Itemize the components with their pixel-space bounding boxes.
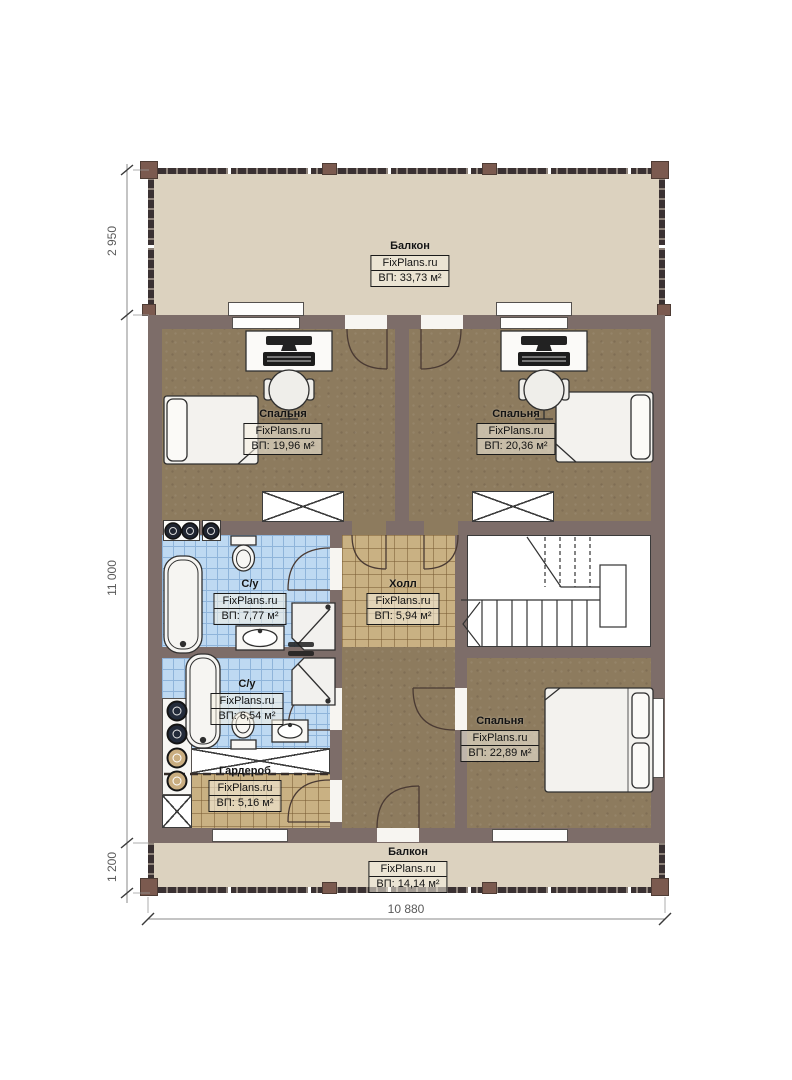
room-info-box: FixPlans.ru ВП: 19,96 м² bbox=[243, 423, 322, 455]
room-label-wardrobe: Гардероб FixPlans.ru ВП: 5,16 м² bbox=[208, 765, 281, 812]
room-label-hall: Холл FixPlans.ru ВП: 5,94 м² bbox=[366, 578, 439, 625]
room-info-box: FixPlans.ru ВП: 6,54 м² bbox=[210, 693, 283, 725]
window bbox=[492, 829, 568, 842]
room-area: ВП: 20,36 м² bbox=[477, 439, 554, 454]
corridor-floor bbox=[342, 647, 455, 828]
room-area: ВП: 5,94 м² bbox=[367, 609, 438, 624]
laundry-column bbox=[162, 698, 192, 795]
room-name: Спальня bbox=[476, 408, 555, 421]
room-area: ВП: 5,16 м² bbox=[209, 796, 280, 811]
counter-box bbox=[202, 520, 221, 541]
window bbox=[652, 698, 664, 778]
watermark-text: FixPlans.ru bbox=[461, 731, 538, 747]
dimension-left-middle: 11 000 bbox=[105, 552, 119, 604]
balcony-post bbox=[482, 882, 497, 894]
balcony-door-opening bbox=[377, 828, 419, 842]
watermark-text: FixPlans.ru bbox=[209, 781, 280, 797]
room-label-balcony-bottom: Балкон FixPlans.ru ВП: 14,14 м² bbox=[368, 846, 447, 893]
door-opening bbox=[330, 780, 342, 822]
staircase-floor bbox=[467, 535, 651, 647]
balcony-post bbox=[651, 161, 669, 179]
room-info-box: FixPlans.ru ВП: 22,89 м² bbox=[460, 730, 539, 762]
window bbox=[496, 302, 572, 316]
shower-size-stamp bbox=[288, 642, 314, 647]
watermark-text: FixPlans.ru bbox=[211, 694, 282, 710]
room-info-box: FixPlans.ru ВП: 5,94 м² bbox=[366, 593, 439, 625]
balcony-door-opening bbox=[345, 315, 387, 329]
balcony-right-railing bbox=[659, 168, 665, 318]
window bbox=[500, 317, 568, 329]
room-info-box: FixPlans.ru ВП: 7,77 м² bbox=[213, 593, 286, 625]
room-label-bathroom-lower: С/у FixPlans.ru ВП: 6,54 м² bbox=[210, 678, 283, 725]
balcony-door-opening bbox=[421, 315, 463, 329]
room-info-box: FixPlans.ru ВП: 14,14 м² bbox=[368, 861, 447, 893]
floor-plan-canvas: Балкон FixPlans.ru ВП: 33,73 м² Спальня … bbox=[0, 0, 792, 1080]
room-label-bedroom-top-right: Спальня FixPlans.ru ВП: 20,36 м² bbox=[476, 408, 555, 455]
room-name: С/у bbox=[210, 678, 283, 691]
room-label-bedroom-top-left: Спальня FixPlans.ru ВП: 19,96 м² bbox=[243, 408, 322, 455]
dimension-left-bottom: 1 200 bbox=[105, 845, 119, 889]
balcony-top-railing bbox=[148, 168, 665, 174]
room-area: ВП: 7,77 м² bbox=[214, 609, 285, 624]
room-label-bathroom-upper: С/у FixPlans.ru ВП: 7,77 м² bbox=[213, 578, 286, 625]
room-info-box: FixPlans.ru ВП: 33,73 м² bbox=[370, 255, 449, 287]
room-name: Холл bbox=[366, 578, 439, 591]
room-name: Гардероб bbox=[208, 765, 281, 778]
room-area: ВП: 19,96 м² bbox=[244, 439, 321, 454]
watermark-text: FixPlans.ru bbox=[477, 424, 554, 440]
room-area: ВП: 33,73 м² bbox=[371, 271, 448, 286]
balcony-post bbox=[140, 161, 158, 179]
room-label-bedroom-bottom: Спальня FixPlans.ru ВП: 22,89 м² bbox=[460, 715, 539, 762]
room-area: ВП: 6,54 м² bbox=[211, 709, 282, 724]
corner-cabinet bbox=[162, 795, 192, 828]
room-name: Балкон bbox=[368, 846, 447, 859]
door-opening bbox=[330, 548, 342, 590]
door-opening bbox=[352, 521, 386, 535]
shower-size-stamp bbox=[288, 651, 314, 656]
watermark-text: FixPlans.ru bbox=[244, 424, 321, 440]
balcony-post bbox=[322, 882, 337, 894]
door-opening bbox=[330, 688, 342, 730]
room-info-box: FixPlans.ru ВП: 5,16 м² bbox=[208, 780, 281, 812]
watermark-text: FixPlans.ru bbox=[369, 862, 446, 878]
watermark-text: FixPlans.ru bbox=[214, 594, 285, 610]
balcony-post bbox=[482, 163, 497, 175]
room-area: ВП: 14,14 м² bbox=[369, 877, 446, 892]
counter-box bbox=[163, 520, 200, 541]
wardrobe-cabinet bbox=[262, 491, 344, 522]
room-info-box: FixPlans.ru ВП: 20,36 м² bbox=[476, 423, 555, 455]
window bbox=[232, 317, 300, 329]
balcony-post bbox=[651, 878, 669, 896]
dimension-left-top: 2 950 bbox=[105, 217, 119, 265]
room-name: Спальня bbox=[460, 715, 539, 728]
watermark-text: FixPlans.ru bbox=[371, 256, 448, 272]
window bbox=[228, 302, 304, 316]
room-name: Спальня bbox=[243, 408, 322, 421]
balcony-post bbox=[322, 163, 337, 175]
watermark-text: FixPlans.ru bbox=[367, 594, 438, 610]
window bbox=[212, 829, 288, 842]
room-name: С/у bbox=[213, 578, 286, 591]
balcony-left-railing bbox=[148, 168, 154, 318]
room-area: ВП: 22,89 м² bbox=[461, 746, 538, 761]
wardrobe-cabinet bbox=[472, 491, 554, 522]
room-label-balcony-top: Балкон FixPlans.ru ВП: 33,73 м² bbox=[370, 240, 449, 287]
door-opening bbox=[424, 521, 458, 535]
balcony-post bbox=[140, 878, 158, 896]
room-name: Балкон bbox=[370, 240, 449, 253]
dimension-bottom-width: 10 880 bbox=[366, 902, 446, 916]
